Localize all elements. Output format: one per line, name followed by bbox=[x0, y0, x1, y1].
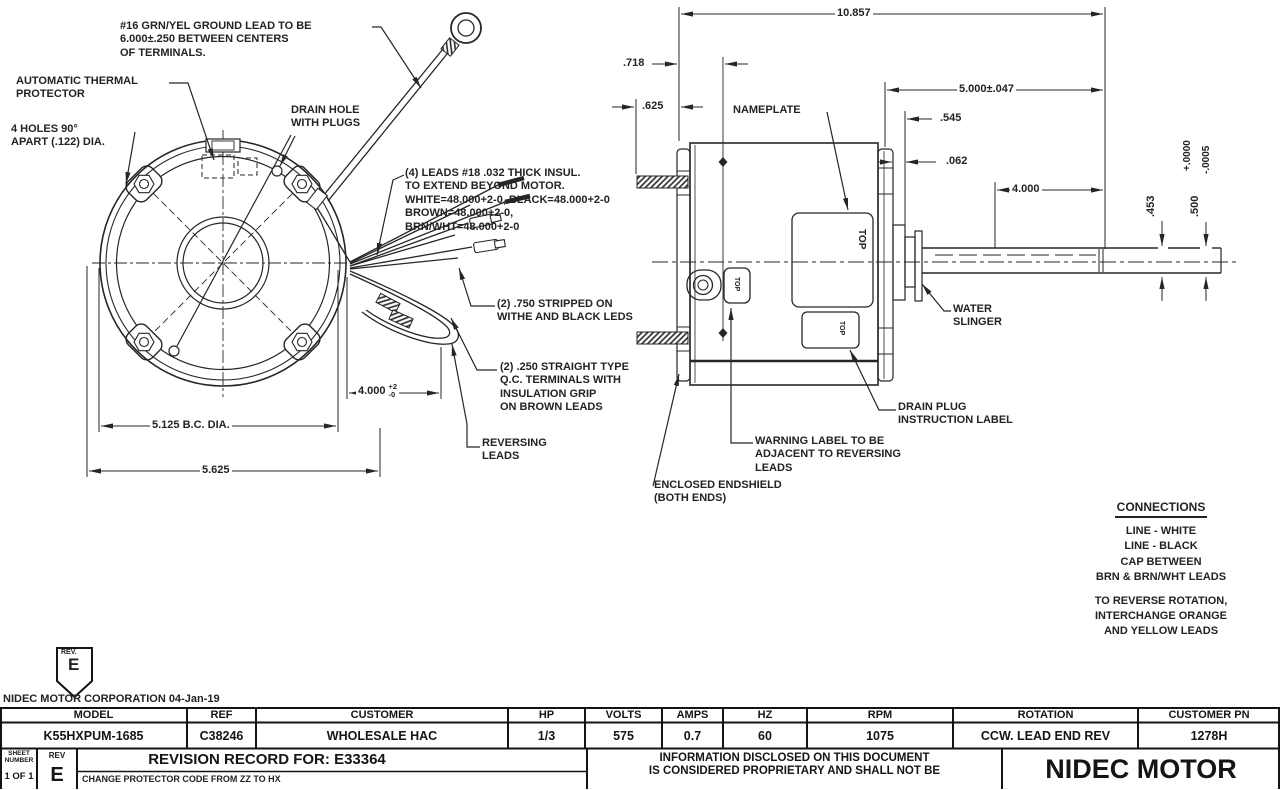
note-water-slinger: WATER SLINGER bbox=[953, 303, 1002, 330]
nameplate-top-label: TOP bbox=[856, 229, 866, 249]
qc-terminal-2 bbox=[473, 238, 505, 253]
rev-col-value: E bbox=[38, 760, 76, 790]
side-view bbox=[637, 57, 1240, 385]
note-nameplate: NAMEPLATE bbox=[733, 104, 801, 117]
sheet-number-label: SHEET NUMBER bbox=[2, 749, 36, 765]
dim-tol-plus: +.0000 bbox=[1182, 140, 1193, 171]
col-header-model: MODEL bbox=[0, 707, 187, 722]
cell-model: K55HXPUM-1685 bbox=[0, 723, 187, 748]
col-header-customer: CUSTOMER bbox=[256, 707, 508, 722]
cell-rotation: CCW. LEAD END REV bbox=[953, 723, 1138, 748]
company-name: NIDEC MOTOR bbox=[1002, 749, 1280, 789]
cell-amps: 0.7 bbox=[662, 723, 723, 748]
dim-bolt-circle: 5.125 B.C. DIA. bbox=[150, 419, 232, 432]
dim-lead-length: 4.000+2-0 bbox=[356, 383, 399, 399]
dim-outer-dia: 5.625 bbox=[200, 464, 232, 477]
cell-ref: C38246 bbox=[187, 723, 256, 748]
nameplate-outline bbox=[792, 213, 873, 307]
col-header-rotation: ROTATION bbox=[953, 707, 1138, 722]
dim-453: .453 bbox=[1146, 196, 1157, 217]
cell-rpm: 1075 bbox=[807, 723, 953, 748]
dim-tol-minus: -.0005 bbox=[1201, 146, 1212, 174]
connections-block: CONNECTIONS LINE - WHITE LINE - BLACK CA… bbox=[1055, 500, 1267, 640]
grommet bbox=[687, 270, 721, 300]
note-drain-hole: DRAIN HOLE WITH PLUGS bbox=[291, 104, 360, 131]
cell-hp: 1/3 bbox=[508, 723, 585, 748]
drain-top-label: TOP bbox=[838, 321, 845, 335]
end-view bbox=[92, 130, 356, 397]
note-leads: (4) LEADS #18 .032 THICK INSUL. TO EXTEN… bbox=[405, 167, 610, 234]
note-thermal-protector: AUTOMATIC THERMAL PROTECTOR bbox=[16, 75, 138, 102]
col-header-volts: VOLTS bbox=[585, 707, 662, 722]
company-line: NIDEC MOTOR CORPORATION 04-Jan-19 bbox=[3, 693, 220, 706]
water-slinger-disc bbox=[915, 231, 922, 301]
note-ground-lead: #16 GRN/YEL GROUND LEAD TO BE 6.000±.250… bbox=[120, 20, 312, 60]
warning-top-label: TOP bbox=[733, 277, 740, 291]
revision-change-note: CHANGE PROTECTOR CODE FROM ZZ TO HX bbox=[82, 774, 281, 784]
drain-hole-bottom bbox=[169, 346, 179, 356]
note-qc-terminals: (2) .250 STRAIGHT TYPE Q.C. TERMINALS WI… bbox=[500, 361, 629, 415]
revision-record-title: REVISION RECORD FOR: E33364 bbox=[77, 749, 457, 770]
lead-stub-upper bbox=[637, 176, 688, 188]
dim-overall-length: 10.857 bbox=[835, 7, 873, 20]
col-header-hp: HP bbox=[508, 707, 585, 722]
rev-flag-value: E bbox=[68, 658, 79, 671]
note-warning-label: WARNING LABEL TO BE ADJACENT TO REVERSIN… bbox=[755, 435, 901, 475]
dim-625: .625 bbox=[640, 100, 665, 113]
note-drain-plug-label: DRAIN PLUG INSTRUCTION LABEL bbox=[898, 401, 1013, 428]
col-header-customer-pn: CUSTOMER PN bbox=[1138, 707, 1280, 722]
col-header-rpm: RPM bbox=[807, 707, 953, 722]
proprietary-note: INFORMATION DISCLOSED ON THIS DOCUMENT I… bbox=[587, 750, 1002, 780]
drain-label-outline bbox=[802, 312, 859, 348]
cell-hz: 60 bbox=[723, 723, 807, 748]
col-header-amps: AMPS bbox=[662, 707, 723, 722]
note-mounting-holes: 4 HOLES 90° APART (.122) DIA. bbox=[11, 123, 105, 150]
note-stripped-leads: (2) .750 STRIPPED ON WITHE AND BLACK LED… bbox=[497, 298, 633, 325]
dim-shaft-4000: 4.000 bbox=[1010, 183, 1042, 196]
dim-shaft-extension: 5.000±.047 bbox=[957, 83, 1016, 96]
dim-718: .718 bbox=[621, 57, 646, 70]
thermal-protector-outline bbox=[202, 155, 257, 178]
col-header-hz: HZ bbox=[723, 707, 807, 722]
sheet-number-value: 1 OF 1 bbox=[2, 766, 36, 786]
dim-062: .062 bbox=[944, 155, 969, 168]
side-view-dimensions bbox=[612, 7, 1206, 301]
drawing-linework bbox=[0, 0, 1280, 790]
note-reversing-leads: REVERSING LEADS bbox=[482, 437, 547, 464]
connections-title: CONNECTIONS bbox=[1115, 500, 1208, 518]
cell-customer: WHOLESALE HAC bbox=[256, 723, 508, 748]
ring-terminal bbox=[451, 13, 481, 43]
cell-volts: 575 bbox=[585, 723, 662, 748]
engineering-drawing-sheet: #16 GRN/YEL GROUND LEAD TO BE 6.000±.250… bbox=[0, 0, 1280, 790]
dim-545: .545 bbox=[938, 112, 963, 125]
col-header-ref: REF bbox=[187, 707, 256, 722]
note-endshield: ENCLOSED ENDSHIELD (BOTH ENDS) bbox=[654, 479, 782, 506]
lead-stub-lower bbox=[637, 332, 688, 344]
dim-500: .500 bbox=[1190, 196, 1201, 217]
cell-customer-pn: 1278H bbox=[1138, 723, 1280, 748]
